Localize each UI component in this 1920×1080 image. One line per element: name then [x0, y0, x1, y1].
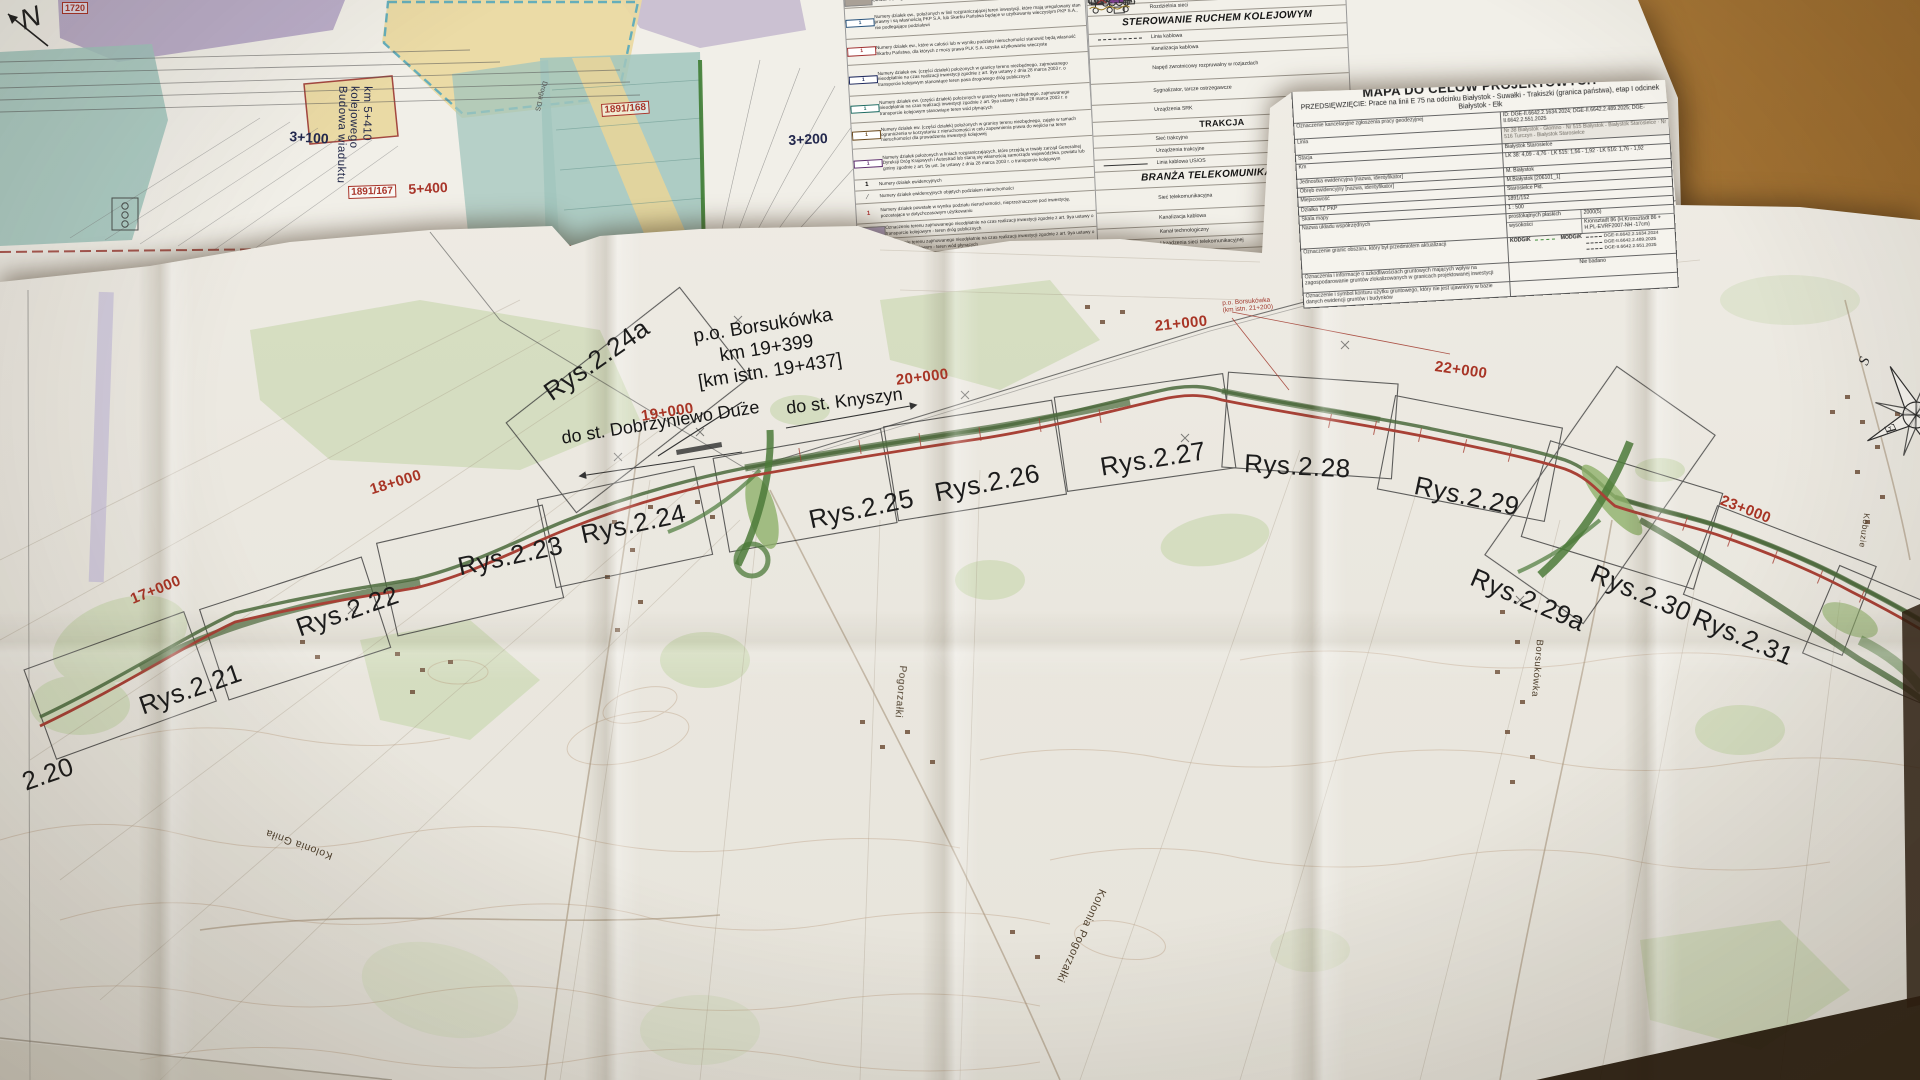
title-block: MAPA DO CELÓW PROJEKTOWYCH PRZEDSIĘWZIĘC…	[1291, 65, 1679, 309]
sheet-label-2-28: Rys.2.28	[1243, 448, 1351, 485]
compass-rose-icon	[1842, 341, 1920, 490]
main-topo-map-sheet: 17+000 18+000 19+000 20+000 21+000 22+00…	[0, 0, 1920, 1080]
photo-of-project-maps: N 1720 3+100 Budowa wiaduktu kolejowego …	[0, 0, 1920, 1080]
